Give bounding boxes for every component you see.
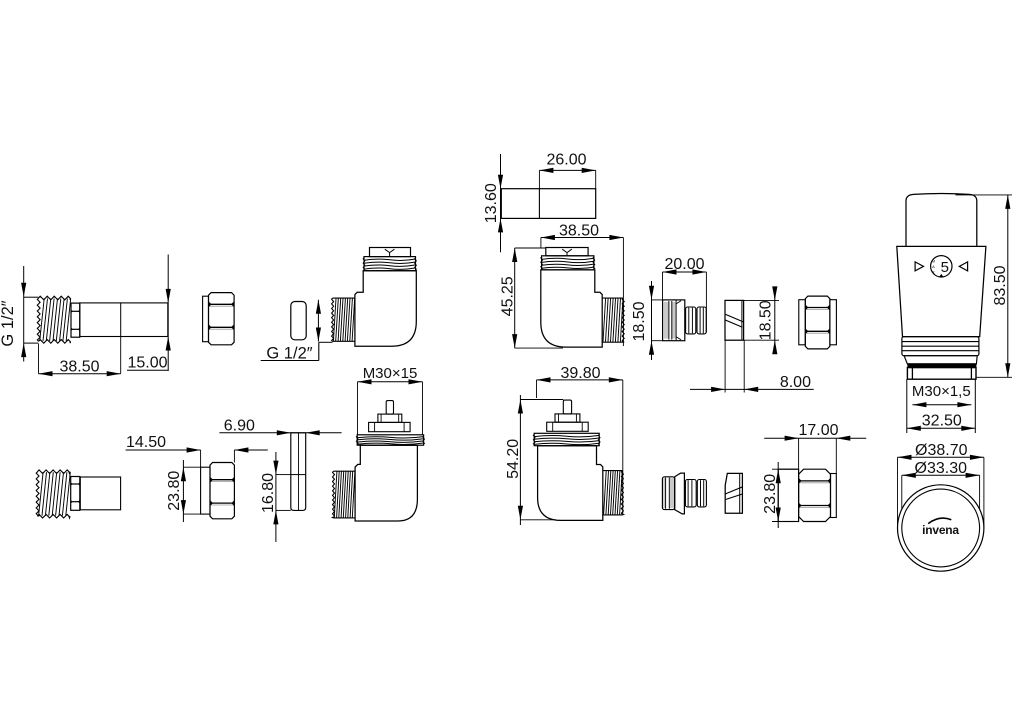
- svg-text:X: X: [932, 269, 935, 274]
- svg-text:26.00: 26.00: [546, 152, 586, 169]
- svg-text:invena: invena: [922, 523, 959, 537]
- svg-text:23.80: 23.80: [166, 471, 183, 511]
- svg-text:6.90: 6.90: [224, 417, 255, 434]
- svg-text:14.50: 14.50: [126, 434, 166, 451]
- svg-text:54.20: 54.20: [505, 439, 522, 479]
- svg-text:45.25: 45.25: [500, 276, 517, 316]
- svg-text:38.50: 38.50: [559, 222, 599, 239]
- svg-text:20.00: 20.00: [664, 256, 704, 273]
- svg-text:83.50: 83.50: [992, 265, 1009, 305]
- svg-text:G 1/2″: G 1/2″: [0, 300, 17, 346]
- svg-text:16.80: 16.80: [260, 473, 277, 513]
- svg-text:M: M: [932, 259, 935, 264]
- svg-text:15.00: 15.00: [127, 354, 167, 371]
- svg-text:M30×1,5: M30×1,5: [912, 383, 971, 400]
- svg-text:Ø33.30: Ø33.30: [915, 460, 968, 477]
- svg-text:39.80: 39.80: [560, 365, 600, 382]
- svg-text:Ø38.70: Ø38.70: [915, 442, 968, 459]
- svg-text:17.00: 17.00: [798, 422, 838, 439]
- svg-text:32.50: 32.50: [922, 412, 962, 429]
- svg-text:38.50: 38.50: [59, 359, 99, 376]
- svg-text:G 1/2″: G 1/2″: [266, 345, 312, 363]
- svg-text:5: 5: [941, 259, 949, 276]
- svg-text:A: A: [932, 264, 935, 269]
- svg-text:18.50: 18.50: [758, 300, 775, 340]
- svg-text:13.60: 13.60: [483, 183, 500, 223]
- svg-text:8.00: 8.00: [780, 374, 811, 391]
- svg-text:18.50: 18.50: [631, 301, 648, 341]
